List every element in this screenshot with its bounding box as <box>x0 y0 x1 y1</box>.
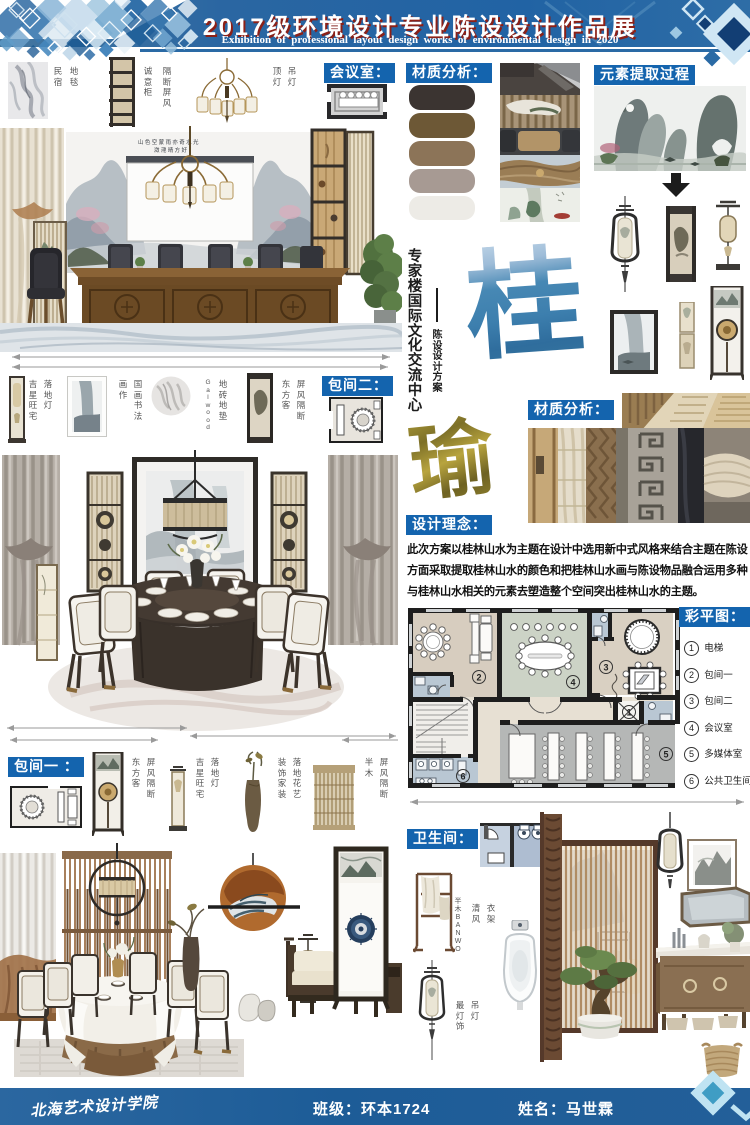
svg-text:3: 3 <box>603 663 608 673</box>
svg-text:5: 5 <box>663 750 668 760</box>
svg-text:1: 1 <box>626 708 631 718</box>
svg-text:潋 滟 晴 方 好: 潋 滟 晴 方 好 <box>154 146 188 154</box>
svg-text:4: 4 <box>570 678 575 688</box>
svg-text:6: 6 <box>460 772 465 782</box>
svg-text:2: 2 <box>476 673 481 683</box>
